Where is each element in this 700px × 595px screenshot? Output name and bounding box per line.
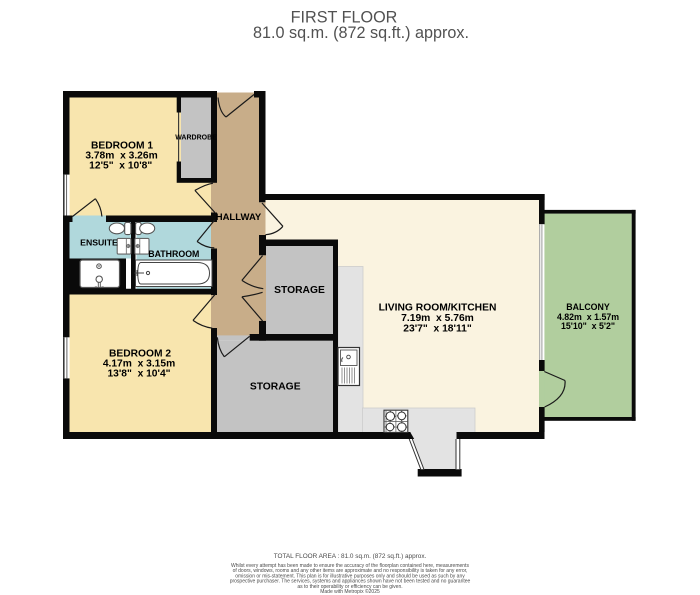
svg-text:15'10" x 5'2": 15'10" x 5'2" [561, 321, 615, 331]
svg-text:STORAGE: STORAGE [274, 285, 325, 296]
svg-text:Made with Metropix ©2025: Made with Metropix ©2025 [320, 588, 380, 595]
svg-text:BEDROOM 2: BEDROOM 2 [109, 348, 171, 359]
svg-text:BALCONY: BALCONY [566, 302, 610, 312]
svg-text:23'7" x 18'11": 23'7" x 18'11" [403, 323, 472, 334]
svg-text:HALLWAY: HALLWAY [216, 212, 262, 223]
svg-text:LIVING ROOM/KITCHEN: LIVING ROOM/KITCHEN [379, 302, 497, 313]
svg-text:BATHROOM: BATHROOM [148, 249, 199, 259]
svg-text:WARDROBE: WARDROBE [175, 135, 217, 142]
svg-text:TOTAL FLOOR AREA : 81.0 sq.m.: TOTAL FLOOR AREA : 81.0 sq.m. (872 sq.ft… [274, 553, 427, 560]
svg-text:ENSUITE: ENSUITE [80, 237, 118, 247]
svg-text:BEDROOM 1: BEDROOM 1 [91, 140, 153, 151]
svg-text:81.0 sq.m. (872 sq.ft.) approx: 81.0 sq.m. (872 sq.ft.) approx. [253, 24, 469, 42]
svg-text:12'5" x 10'8": 12'5" x 10'8" [89, 160, 152, 171]
svg-text:13'8" x 10'4": 13'8" x 10'4" [107, 368, 170, 379]
svg-text:STORAGE: STORAGE [250, 382, 301, 393]
svg-text:7.19m x 5.76m: 7.19m x 5.76m [401, 313, 474, 324]
